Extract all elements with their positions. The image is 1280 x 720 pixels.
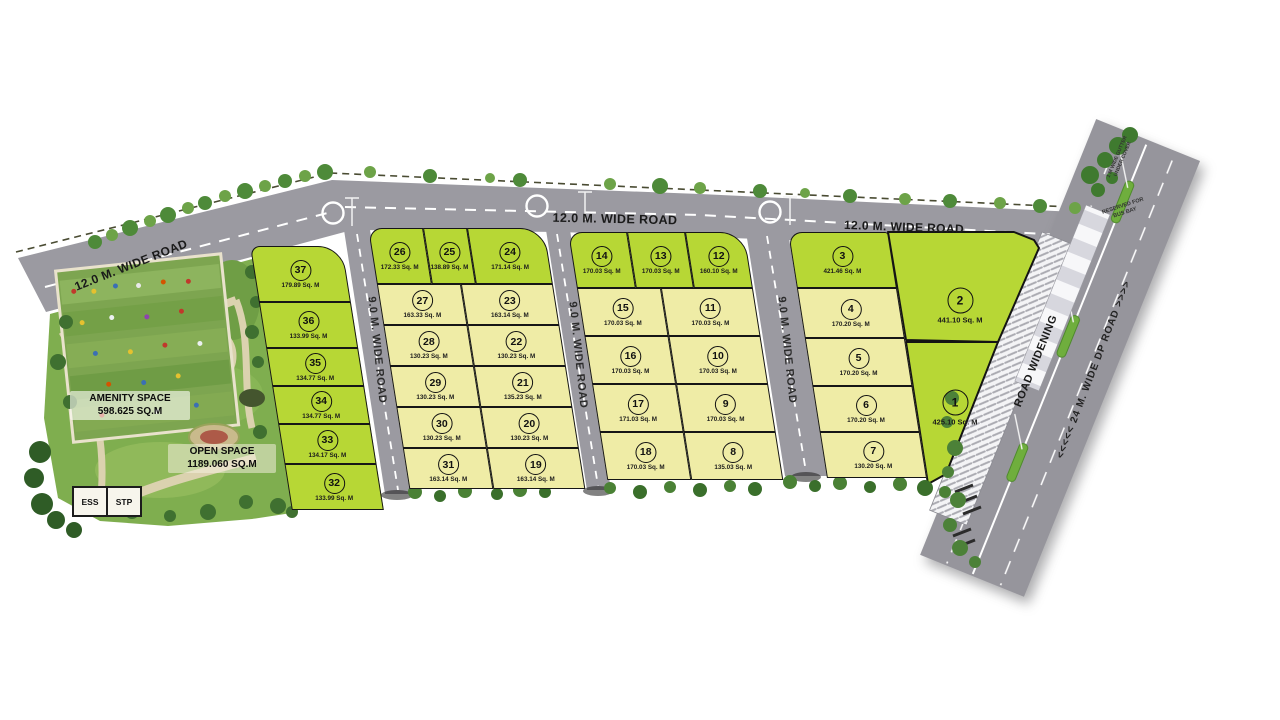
plot-area: 133.99 Sq. M <box>315 495 353 502</box>
plot-number: 31 <box>438 454 459 475</box>
plot-number: 36 <box>298 311 319 332</box>
plot-17: 17171.03 Sq. M <box>592 384 684 432</box>
plot-number: 19 <box>526 454 547 475</box>
stp-box: STP <box>106 486 142 517</box>
open-space-title: OPEN SPACE <box>169 446 275 459</box>
plot-number: 9 <box>716 394 737 415</box>
plot-19: 19163.14 Sq. M <box>487 448 585 489</box>
plot-number: 11 <box>700 298 721 319</box>
plot-24: 24171.14 Sq. M <box>467 228 553 284</box>
plot-area: 163.14 Sq. M <box>517 476 555 483</box>
plot-number: 28 <box>418 331 439 352</box>
plot-15: 15170.03 Sq. M <box>577 288 669 336</box>
plot-block-b-grid: 27163.33 Sq. M23163.14 Sq. M28130.23 Sq.… <box>377 284 585 489</box>
plot-area: 134.77 Sq. M <box>296 375 334 382</box>
ess-box: ESS <box>72 486 108 517</box>
plot-number: 22 <box>506 331 527 352</box>
plot-area: 130.23 Sq. M <box>511 435 549 442</box>
plot-23: 23163.14 Sq. M <box>461 284 559 325</box>
plot-number: 15 <box>612 298 633 319</box>
plot-area: 425.10 Sq. M <box>932 418 977 427</box>
plot-area: 160.10 Sq. M <box>700 268 738 275</box>
plot-number: 24 <box>499 242 520 263</box>
plot-12: 12160.10 Sq. M <box>685 232 753 288</box>
plot-area: 170.20 Sq. M <box>832 321 870 328</box>
plot-number: 34 <box>311 391 332 412</box>
plot-10: 10170.03 Sq. M <box>669 336 768 384</box>
plot-number: 32 <box>324 473 345 494</box>
plot-number: 35 <box>305 353 326 374</box>
plot-area: 170.20 Sq. M <box>847 417 885 424</box>
plot-number: 23 <box>500 290 521 311</box>
plot-area: 134.77 Sq. M <box>302 413 340 420</box>
plot-number: 1 <box>942 390 968 416</box>
plot-area: 170.03 Sq. M <box>583 268 621 275</box>
plot-area: 441.10 Sq. M <box>937 316 982 325</box>
plot-8: 8135.03 Sq. M <box>684 432 783 480</box>
plot-number: 6 <box>856 395 877 416</box>
plot-number: 16 <box>620 346 641 367</box>
plot-number: 33 <box>317 430 338 451</box>
plot-area: 130.20 Sq. M <box>854 463 892 470</box>
plot-21: 21135.23 Sq. M <box>474 366 572 407</box>
plot-6: 6170.20 Sq. M <box>812 386 919 432</box>
plot-number: 7 <box>863 441 884 462</box>
plot-area: 163.14 Sq. M <box>429 476 467 483</box>
plot-number: 17 <box>628 394 649 415</box>
plot-30: 30130.23 Sq. M <box>396 407 487 448</box>
plot-number: 18 <box>635 442 656 463</box>
plot-area: 135.23 Sq. M <box>504 394 542 401</box>
plot-5: 5170.20 Sq. M <box>805 338 913 386</box>
plot-33: 33134.17 Sq. M <box>278 424 376 464</box>
plot-number: 3 <box>832 246 853 267</box>
plot-area: 134.17 Sq. M <box>308 452 346 459</box>
plot-number: 13 <box>650 246 671 267</box>
plot-20: 20130.23 Sq. M <box>481 407 579 448</box>
plot-area: 163.14 Sq. M <box>491 312 529 319</box>
plot-14: 14170.03 Sq. M <box>568 232 636 288</box>
plot-number: 29 <box>425 372 446 393</box>
plot-area: 170.20 Sq. M <box>840 370 878 377</box>
open-space-area: 1189.060 SQ.M <box>169 459 275 472</box>
plot-13: 13170.03 Sq. M <box>627 232 695 288</box>
amenity-space-label: AMENITY SPACE 598.625 SQ.M <box>70 391 190 420</box>
plot-7: 7130.20 Sq. M <box>820 432 927 478</box>
plot-31: 31163.14 Sq. M <box>403 448 494 489</box>
plot-number: 26 <box>389 242 410 263</box>
plot-26: 26172.33 Sq. M <box>368 228 431 284</box>
plot-32: 32133.99 Sq. M <box>285 464 384 510</box>
plot-1: 1 425.10 Sq. M <box>932 390 977 427</box>
plot-number: 30 <box>431 413 452 434</box>
plot-block-c-grid: 15170.03 Sq. M11170.03 Sq. M16170.03 Sq.… <box>577 288 783 480</box>
plot-number: 8 <box>723 442 744 463</box>
plot-area: 135.03 Sq. M <box>715 464 753 471</box>
plot-block-c-top-row: 14170.03 Sq. M13170.03 Sq. M12160.10 Sq.… <box>568 232 753 288</box>
plot-area: 130.23 Sq. M <box>416 394 454 401</box>
open-space-label: OPEN SPACE 1189.060 SQ.M <box>168 444 276 473</box>
plot-area: 170.03 Sq. M <box>700 368 738 375</box>
plot-area: 130.23 Sq. M <box>410 353 448 360</box>
plot-area: 130.23 Sq. M <box>423 435 461 442</box>
plot-area: 163.33 Sq. M <box>403 312 441 319</box>
site-layout-plan: 37179.89 Sq. M36133.99 Sq. M35134.77 Sq.… <box>0 0 1280 720</box>
plot-36: 36133.99 Sq. M <box>259 302 358 348</box>
plot-area: 138.89 Sq. M <box>430 264 468 271</box>
plot-2: 2 441.10 Sq. M <box>937 288 982 325</box>
plot-area: 170.03 Sq. M <box>612 368 650 375</box>
amenity-space-area: 598.625 SQ.M <box>71 406 189 419</box>
plot-number: 10 <box>708 346 729 367</box>
plot-area: 133.99 Sq. M <box>290 333 328 340</box>
plot-4: 4170.20 Sq. M <box>797 288 905 338</box>
plot-22: 22130.23 Sq. M <box>468 325 566 366</box>
plot-area: 170.03 Sq. M <box>604 320 642 327</box>
plot-35: 35134.77 Sq. M <box>266 348 364 386</box>
plot-18: 18170.03 Sq. M <box>600 432 692 480</box>
plot-number: 2 <box>947 288 973 314</box>
plot-number: 20 <box>519 413 540 434</box>
plot-number: 25 <box>438 242 459 263</box>
plot-area: 130.23 Sq. M <box>498 353 536 360</box>
plot-number: 27 <box>412 290 433 311</box>
plot-number: 5 <box>848 348 869 369</box>
plot-11: 11170.03 Sq. M <box>661 288 760 336</box>
plot-area: 171.14 Sq. M <box>491 264 529 271</box>
plot-number: 21 <box>513 372 534 393</box>
plot-number: 37 <box>290 260 311 281</box>
plot-block-b-top-row: 26172.33 Sq. M25138.89 Sq. M24171.14 Sq.… <box>368 228 553 284</box>
plot-area: 421.46 Sq. M <box>824 268 862 275</box>
plot-number: 14 <box>591 246 612 267</box>
plot-number: 4 <box>840 299 861 320</box>
plot-area: 170.03 Sq. M <box>707 416 745 423</box>
plot-37: 37179.89 Sq. M <box>250 246 351 302</box>
plot-28: 28130.23 Sq. M <box>383 325 474 366</box>
plot-area: 170.03 Sq. M <box>627 464 665 471</box>
plot-16: 16170.03 Sq. M <box>584 336 676 384</box>
plot-area: 170.03 Sq. M <box>692 320 730 327</box>
plot-27: 27163.33 Sq. M <box>377 284 468 325</box>
plot-34: 34134.77 Sq. M <box>272 386 370 424</box>
plot-9: 9170.03 Sq. M <box>677 384 776 432</box>
plot-area: 172.33 Sq. M <box>381 264 419 271</box>
plot-29: 29130.23 Sq. M <box>390 366 481 407</box>
plot-3: 3421.46 Sq. M <box>788 232 897 288</box>
plot-area: 179.89 Sq. M <box>282 282 320 289</box>
plot-area: 170.03 Sq. M <box>642 268 680 275</box>
amenity-space-title: AMENITY SPACE <box>71 393 189 406</box>
plot-number: 12 <box>709 246 730 267</box>
plot-area: 171.03 Sq. M <box>619 416 657 423</box>
